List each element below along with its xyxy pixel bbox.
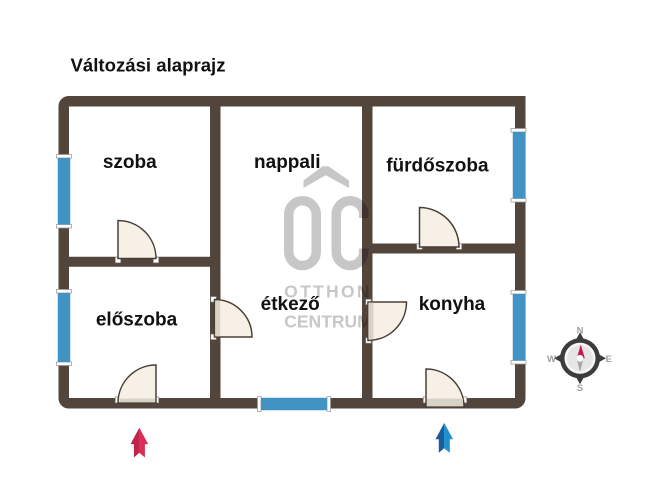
svg-text:előszoba: előszoba <box>96 310 178 331</box>
svg-text:S: S <box>577 383 583 394</box>
svg-text:E: E <box>606 354 612 365</box>
svg-text:N: N <box>577 326 584 337</box>
svg-text:fürdőszoba: fürdőszoba <box>386 156 489 177</box>
svg-text:konyha: konyha <box>419 294 486 315</box>
svg-text:Változási alaprajz: Változási alaprajz <box>71 55 226 76</box>
svg-text:nappali: nappali <box>254 152 321 173</box>
svg-text:szoba: szoba <box>103 152 157 173</box>
svg-text:étkező: étkező <box>261 294 320 315</box>
svg-text:W: W <box>547 354 556 365</box>
